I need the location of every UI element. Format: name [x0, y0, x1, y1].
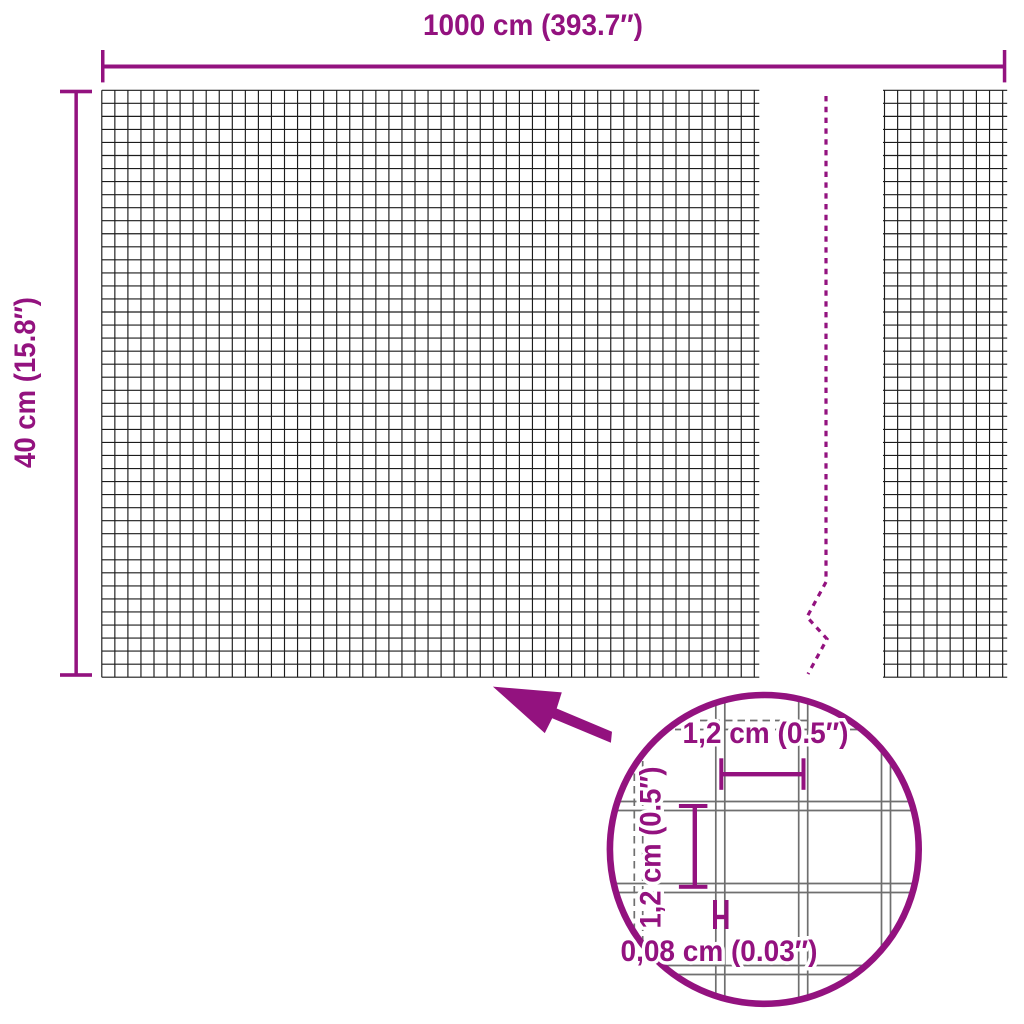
svg-text:0,08 cm (0.03″): 0,08 cm (0.03″)	[621, 935, 818, 968]
svg-text:1,2 cm (0.5″): 1,2 cm (0.5″)	[683, 717, 849, 750]
svg-text:40 cm (15.8″): 40 cm (15.8″)	[9, 297, 42, 468]
svg-text:1000 cm (393.7″): 1000 cm (393.7″)	[423, 9, 643, 42]
svg-text:1,2 cm (0.5″): 1,2 cm (0.5″)	[635, 767, 668, 929]
